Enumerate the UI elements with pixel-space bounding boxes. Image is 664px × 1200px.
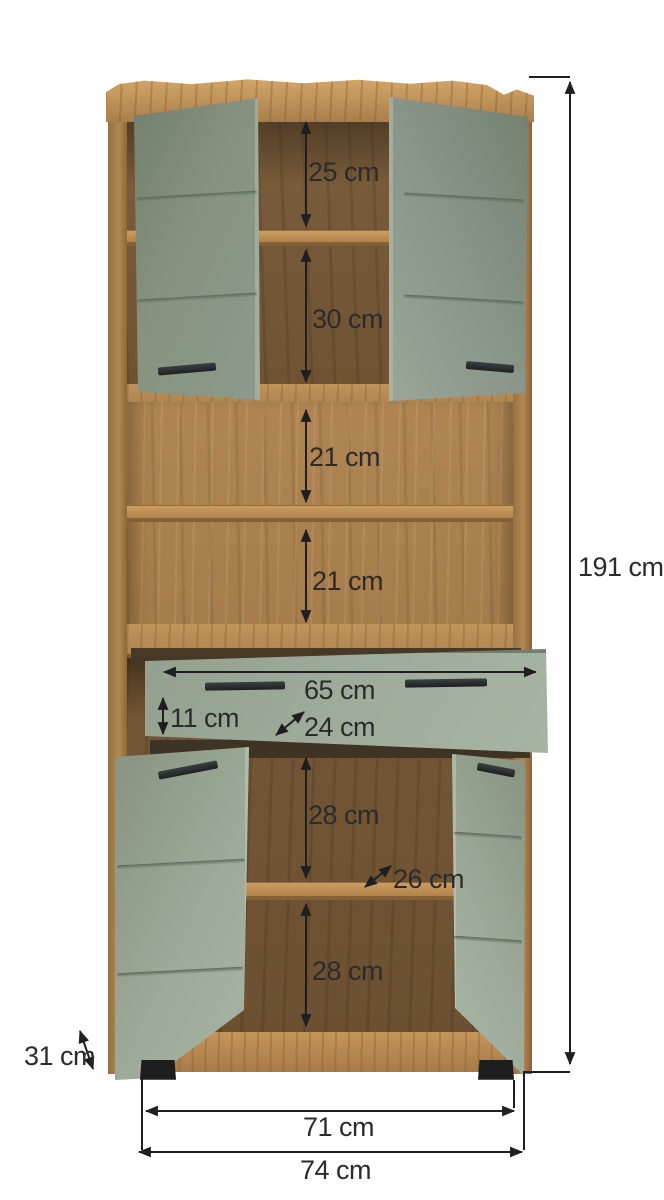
middle-shelf [127,505,513,522]
drawer-handle-right [405,678,487,687]
left-foot [140,1060,176,1082]
dimension-label-191cm: 191 cm [578,553,664,581]
dimension-label-31cm: 31 cm [24,1042,95,1070]
right-foot [478,1060,514,1082]
dimension-label-21cm-lower: 21 cm [312,567,383,595]
dimension-label-11cm: 11 cm [170,704,239,732]
dimension-label-28cm-lower: 28 cm [312,957,383,985]
upper-left-door [134,98,260,402]
drawer-handle-left [205,681,285,690]
upper-right-door [388,96,529,402]
dimension-label-24cm: 24 cm [304,713,375,741]
dimension-label-74cm: 74 cm [300,1156,371,1184]
dimension-label-26cm: 26 cm [393,865,464,893]
dimension-label-30cm: 30 cm [312,305,383,333]
lower-right-door-face [451,750,526,1080]
dimension-label-71cm: 71 cm [303,1113,374,1141]
upper-left-door-face [134,98,260,402]
dimension-label-21cm-upper: 21 cm [309,443,380,471]
dimension-label-65cm: 65 cm [304,676,375,704]
extension-line-191cm-bottom [524,1072,570,1150]
upper-right-door-face [388,96,529,402]
dimension-label-25cm: 25 cm [308,158,379,186]
furniture-dimension-diagram: 25 cm 30 cm 21 cm 21 cm 65 cm 11 cm 24 c… [0,0,664,1200]
lower-left-door-face [114,744,250,1082]
dimension-label-28cm-upper: 28 cm [308,801,379,829]
lower-left-door [114,744,250,1082]
lower-right-door [451,750,526,1080]
open-shelf-interior [127,400,513,658]
